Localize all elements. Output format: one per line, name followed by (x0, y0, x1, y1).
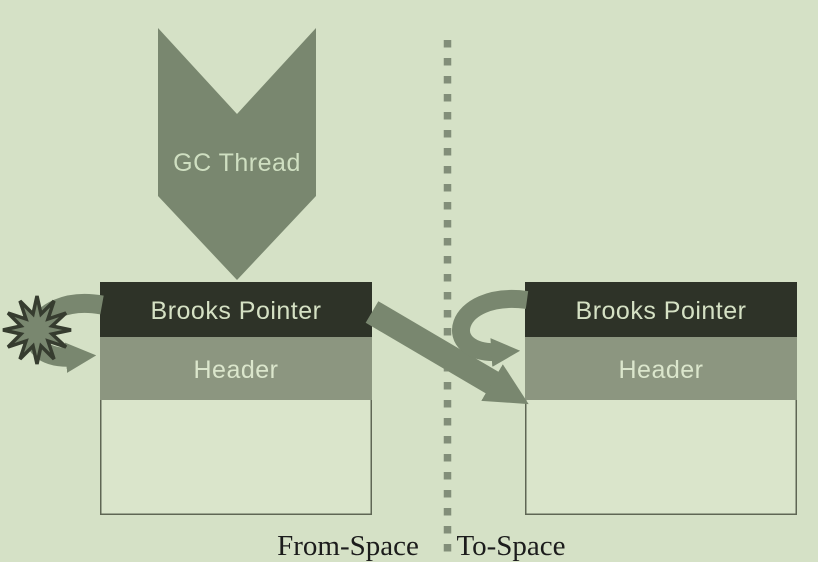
gc-thread-label: GC Thread (173, 149, 301, 177)
to-space-object: Brooks Pointer Header (525, 282, 797, 514)
to-space-label: To-Space (456, 530, 565, 562)
diagram-canvas: GC Thread Brooks Pointer Header Brooks P… (0, 0, 818, 562)
from-space-object: Brooks Pointer Header (100, 282, 372, 514)
brooks-pointer-label: Brooks Pointer (576, 297, 747, 325)
brooks-pointer-label: Brooks Pointer (151, 297, 322, 325)
header-label: Header (194, 356, 279, 384)
brooks-pointer-diagram: GC Thread Brooks Pointer Header Brooks P… (0, 0, 818, 562)
header-label: Header (619, 356, 704, 384)
from-space-label: From-Space (277, 530, 419, 562)
